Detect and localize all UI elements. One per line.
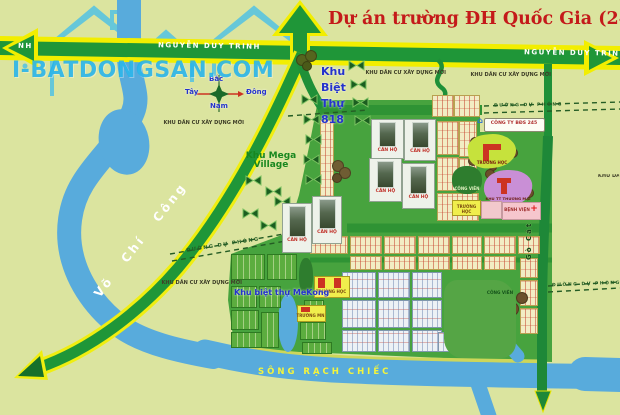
villa-lot-block	[302, 342, 332, 354]
apartment-block: CĂN HỘ	[404, 119, 436, 161]
tree-icon	[332, 173, 342, 183]
villa-lot-block	[300, 322, 326, 340]
lot-block	[452, 236, 482, 254]
villa-x-icon	[242, 208, 259, 219]
lot-block	[454, 95, 480, 117]
lot-block	[342, 300, 376, 328]
mekong-school-building-icon	[318, 278, 325, 288]
compass-west-label: Tây	[185, 89, 198, 96]
villa-818-label: Khu Biệt Thự 818	[321, 64, 346, 128]
lot-block	[432, 95, 454, 117]
villa-x-icon	[348, 60, 365, 71]
watermark: I-BATDONGSAN.COM	[12, 58, 274, 83]
lot-block	[384, 256, 416, 270]
villa-x-icon	[303, 114, 320, 125]
lot-block	[350, 236, 382, 254]
road-label-go-cat: Gò Cát	[526, 200, 533, 260]
park-ne-label: CÔNG VIÊN	[450, 186, 484, 191]
compass-south-label: Nam	[210, 103, 228, 110]
kindergarten-building-icon	[301, 307, 310, 312]
lot-block	[437, 121, 459, 155]
road-label-ndt-fragment: NH	[18, 43, 33, 51]
company-house-icon: ⌂	[475, 116, 485, 125]
new-residential-label-1: KHU DÂN CƯ XÂY DỰNG MỚI	[164, 121, 245, 126]
new-residential-label-2: KHU DÂN CƯ XÂY DỰNG MỚI	[162, 281, 243, 286]
mekong-school-building-icon	[334, 278, 341, 288]
mega-village-line2: Village	[254, 160, 289, 170]
new-residential-label-truncated: KHU DÂN CƯ XÂY DỰNG MỚI	[598, 174, 619, 179]
apartment-building-icon	[319, 199, 336, 229]
map-title: Dự án trường ĐH Quốc Gia (245)	[328, 10, 618, 28]
apartment-block: CĂN HỘ	[312, 196, 342, 244]
lot-block	[378, 330, 410, 352]
tree-icon	[302, 61, 312, 71]
villa-x-icon	[354, 115, 371, 126]
villa-x-icon	[301, 94, 318, 105]
villa-lot-block	[231, 254, 265, 280]
lot-block	[378, 272, 410, 298]
villa-x-icon	[305, 174, 322, 185]
villa-lot-block	[267, 254, 297, 280]
apartment-building-icon	[377, 161, 394, 188]
lot-block	[384, 236, 416, 254]
lot-block	[412, 300, 442, 328]
villa-818-line1: Khu	[321, 64, 346, 80]
villa-x-icon	[303, 154, 320, 165]
villa-x-icon	[245, 175, 262, 186]
villa-x-icon	[350, 79, 367, 90]
trade-center-building-icon	[501, 183, 507, 194]
lot-block	[452, 256, 482, 270]
lot-block	[342, 330, 376, 352]
apartment-block: CĂN HỘ	[369, 158, 402, 202]
lot-block	[520, 308, 538, 334]
lot-block	[350, 256, 382, 270]
apartment-building-icon	[289, 206, 306, 237]
villa-lot-block	[231, 310, 259, 330]
villa-818-line4: 818	[321, 112, 346, 128]
apartment-building-icon	[410, 166, 427, 194]
apartment-building-icon	[412, 122, 429, 148]
lot-block	[378, 300, 410, 328]
real-estate-map: Dự án trường ĐH Quốc Gia (245) I-BATDONG…	[0, 0, 620, 415]
lot-block	[484, 256, 516, 270]
school-blob-label: TRƯỜNG HỌC	[470, 160, 514, 165]
lot-block	[412, 272, 442, 298]
mekong-villa-label: Khu biệt thự MeKong	[234, 289, 329, 297]
mega-village-label: Khu Mega Village	[243, 152, 299, 171]
villa-818-line3: Thự	[321, 96, 346, 112]
park-se-label: CÔNG VIÊN	[478, 290, 522, 295]
apartment-block: CĂN HỘ	[282, 203, 312, 253]
villa-x-icon	[352, 97, 369, 108]
new-residential-label-3: KHU DÂN CƯ XÂY DỰNG MỚI	[366, 71, 447, 76]
river-label: SÔNG RẠCH CHIẾC	[258, 368, 391, 377]
villa-x-icon	[260, 220, 277, 231]
kindergarten-label: TRƯỜNG MN	[296, 313, 325, 318]
villa-818-line2: Biệt	[321, 80, 346, 96]
compass-east-label: Đông	[246, 89, 267, 96]
villa-x-icon	[305, 134, 322, 145]
new-residential-label-4: KHU DÂN CƯ XÂY DỰNG MỚI	[471, 73, 552, 78]
apartment-block: CĂN HỘ	[371, 119, 404, 159]
pink-block	[481, 201, 502, 219]
lot-block	[418, 236, 450, 254]
villa-lot-block	[261, 312, 279, 348]
school-box-label: TRƯỜNG HỌC	[452, 204, 481, 214]
lot-block	[484, 236, 516, 254]
apartment-building-icon	[379, 122, 396, 147]
apartment-block: CĂN HỘ	[402, 163, 435, 209]
company-label: CÔNG TY BĐS 245	[485, 121, 543, 126]
lot-block	[520, 258, 538, 278]
lot-block	[418, 256, 450, 270]
